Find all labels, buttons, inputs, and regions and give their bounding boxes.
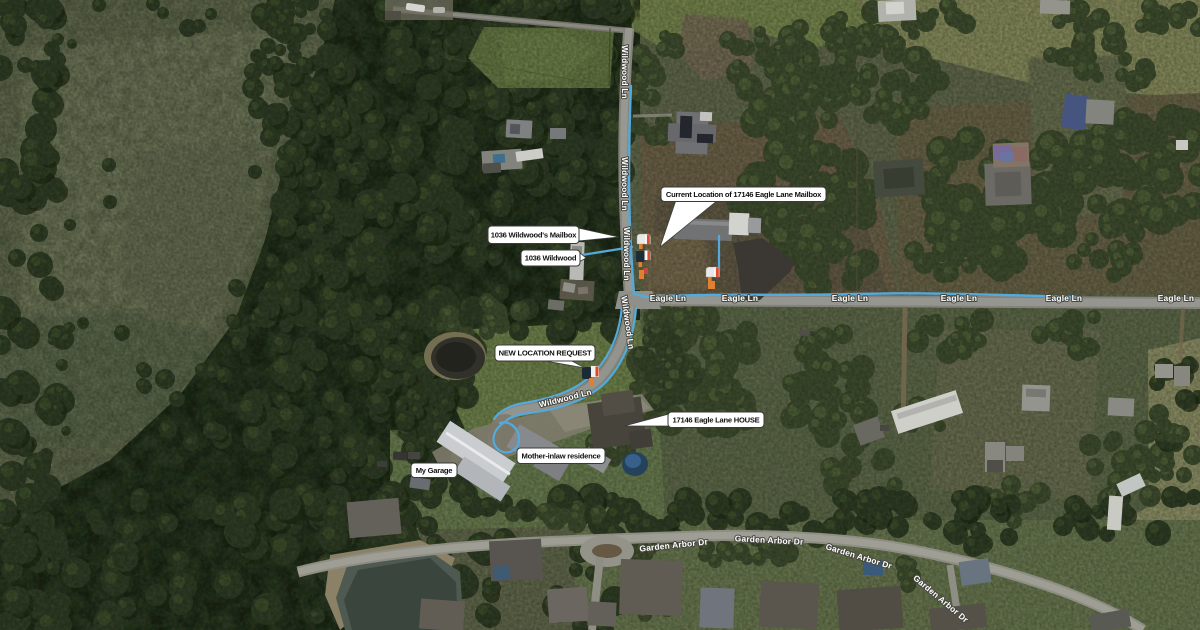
svg-text:Wildwood Ln: Wildwood Ln	[620, 45, 630, 99]
svg-text:Current Location of 17146 Eagl: Current Location of 17146 Eagle Lane Mai…	[666, 190, 822, 199]
svg-text:Mother-inlaw residence: Mother-inlaw residence	[522, 451, 601, 460]
svg-text:Eagle Ln: Eagle Ln	[832, 293, 869, 303]
svg-text:Eagle Ln: Eagle Ln	[1046, 293, 1083, 303]
svg-text:My Garage: My Garage	[416, 466, 453, 475]
svg-text:Eagle Ln: Eagle Ln	[650, 293, 687, 303]
svg-text:Eagle Ln: Eagle Ln	[722, 293, 759, 303]
svg-text:Wildwood Ln: Wildwood Ln	[620, 157, 630, 211]
svg-text:NEW LOCATION REQUEST: NEW LOCATION REQUEST	[499, 349, 592, 358]
svg-text:17146 Eagle Lane HOUSE: 17146 Eagle Lane HOUSE	[673, 415, 760, 424]
svg-text:1036 Wildwood: 1036 Wildwood	[525, 254, 577, 263]
svg-text:1036 Wildwood's Mailbox: 1036 Wildwood's Mailbox	[491, 230, 577, 239]
svg-text:Wildwood Ln: Wildwood Ln	[622, 227, 632, 281]
svg-text:Eagle Ln: Eagle Ln	[1158, 293, 1195, 303]
svg-text:Eagle Ln: Eagle Ln	[941, 293, 978, 303]
